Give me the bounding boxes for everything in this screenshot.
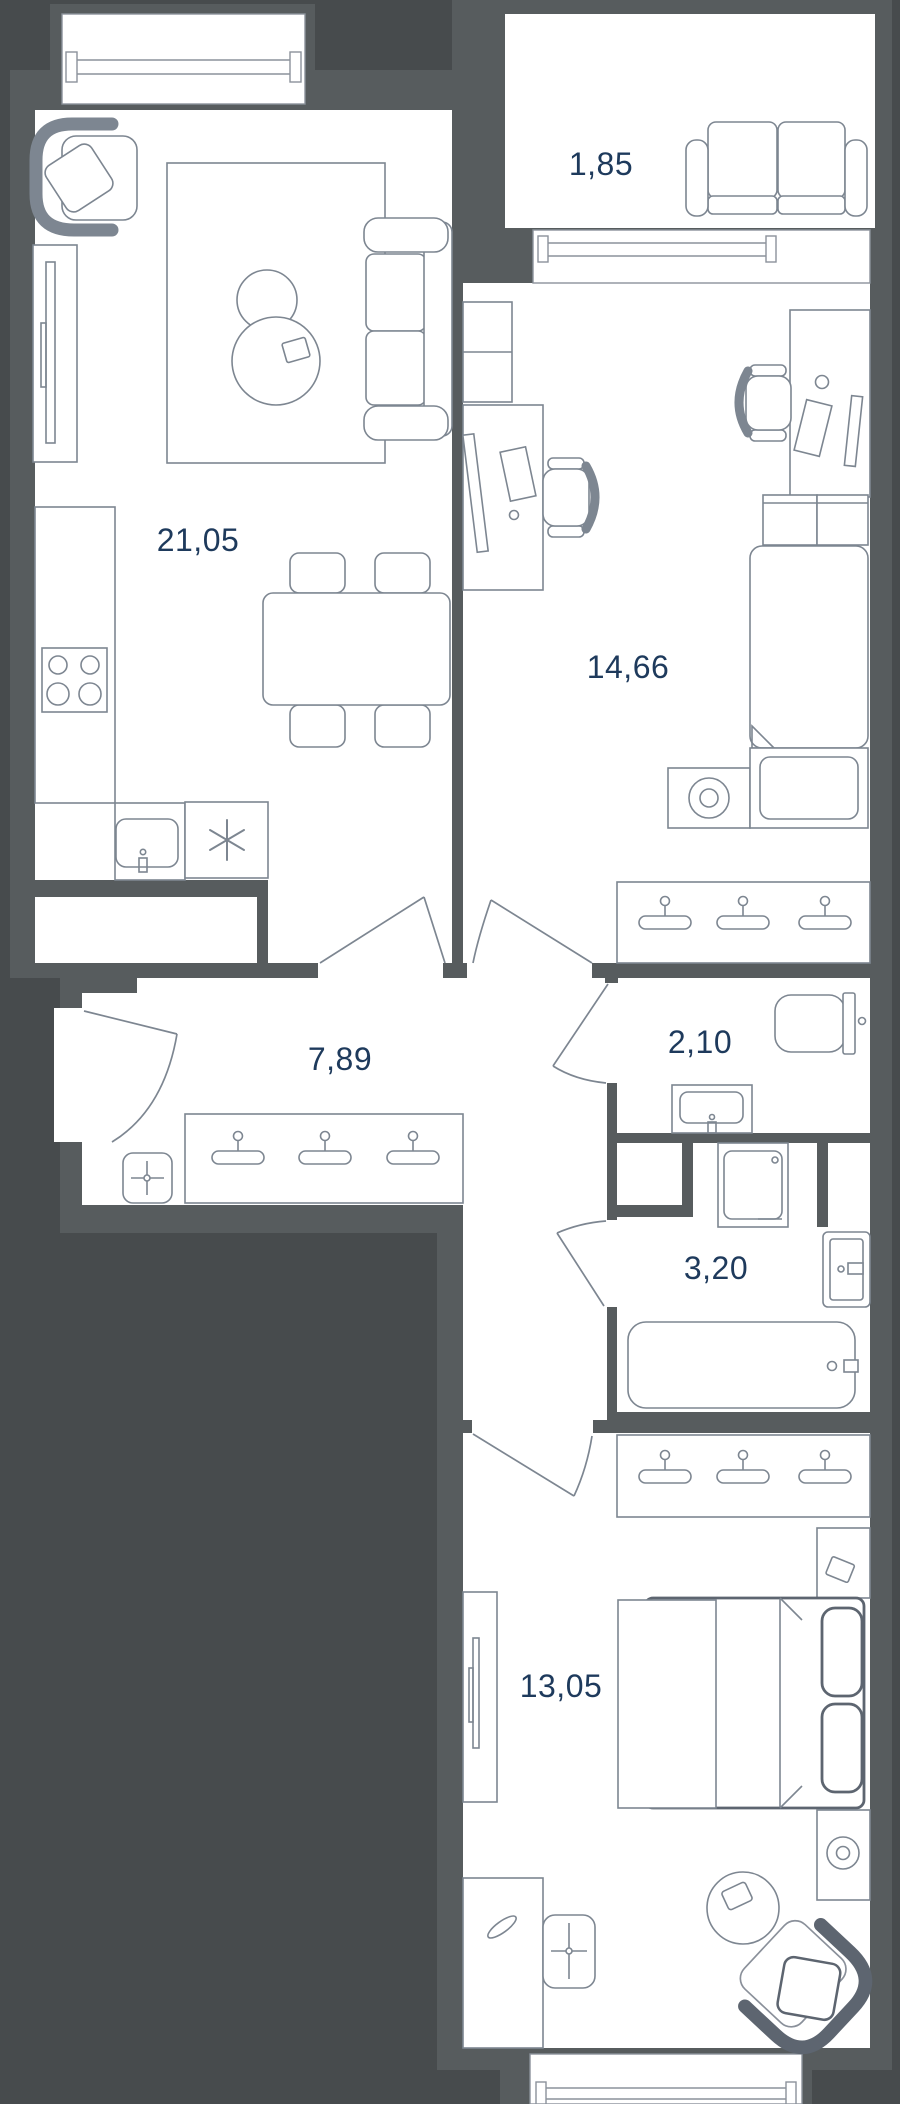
- round-table: [707, 1872, 779, 1944]
- label-bedroom: 14,66: [587, 649, 670, 685]
- opening-bedroom-door: [467, 963, 592, 978]
- toilet-sink: [672, 1085, 752, 1133]
- kitchen-sink: [116, 819, 178, 872]
- window-top: [62, 14, 305, 104]
- fridge: [185, 802, 268, 878]
- tv-cabinet-2: [463, 1592, 497, 1802]
- label-bathroom: 3,20: [684, 1250, 748, 1286]
- dining-chair: [375, 553, 430, 593]
- stove: [42, 648, 107, 712]
- kitchen-niche: [35, 897, 257, 963]
- label-hallway: 7,89: [308, 1041, 372, 1077]
- dining-chair: [290, 705, 345, 747]
- wardrobe-shelf: [463, 302, 512, 402]
- pouf: [668, 768, 750, 828]
- furniture-balcony: [686, 122, 867, 216]
- label-toilet: 2,10: [668, 1024, 732, 1060]
- office-chair-left: [543, 458, 595, 537]
- window-bottom: [530, 2054, 802, 2104]
- bed-bench: [750, 748, 868, 828]
- washing-machine: [718, 1143, 788, 1227]
- closet-bedroom: [617, 882, 870, 963]
- tv-screen: [46, 262, 55, 443]
- desk-left: [463, 405, 543, 590]
- balcony-sofa: [686, 122, 867, 216]
- desk-right: [790, 310, 870, 497]
- window-balcony-bedroom: [533, 230, 870, 283]
- nightstand-top: [817, 1528, 870, 1598]
- office-chair-right: [739, 365, 791, 441]
- dining-table: [263, 593, 450, 705]
- toilet-wc: [775, 993, 866, 1054]
- bathtub: [628, 1322, 858, 1408]
- closet-hallway: [185, 1114, 463, 1203]
- bathroom-door-leaf: [823, 1232, 870, 1307]
- nightstand-bottom: [817, 1810, 870, 1900]
- opening-bedroom2-door: [472, 1418, 593, 1433]
- floor-plan: 21,05 1,85 14,66 7,89 2,10 3,20 13,05: [0, 0, 900, 2104]
- double-bed: [618, 1598, 864, 1808]
- label-bedroom2: 13,05: [520, 1668, 603, 1704]
- label-balcony: 1,85: [569, 146, 633, 182]
- opening-entrance-door: [54, 1008, 82, 1142]
- pillow: [822, 1704, 862, 1792]
- dining-chair: [290, 553, 345, 593]
- dining-chair: [375, 705, 430, 747]
- hall-stool: [123, 1153, 172, 1203]
- sofa: [364, 218, 452, 440]
- vanity-chair: [543, 1915, 595, 1988]
- label-living-kitchen: 21,05: [157, 522, 240, 558]
- opening-living-door: [318, 963, 443, 978]
- bed-single: [750, 495, 868, 748]
- pillow: [822, 1608, 862, 1696]
- closet-bedroom2: [617, 1435, 870, 1517]
- coffee-table-large: [232, 317, 320, 405]
- opening-toilet-door: [607, 982, 617, 1083]
- vanity-desk: [463, 1878, 543, 2048]
- opening-bathroom-door: [607, 1220, 617, 1307]
